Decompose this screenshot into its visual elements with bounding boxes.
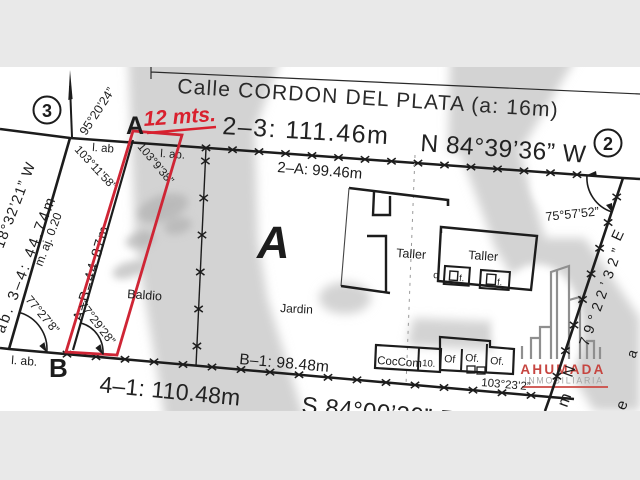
svg-text:Of: Of [444, 353, 456, 366]
svg-text:10.: 10. [422, 358, 436, 370]
svg-text:Taller: Taller [396, 246, 427, 262]
svg-text:B: B [49, 353, 68, 383]
svg-text:Taller: Taller [468, 248, 499, 264]
svg-text:Of.: Of. [490, 355, 505, 368]
svg-text:A: A [126, 112, 144, 140]
svg-text:l. ab: l. ab [92, 142, 115, 155]
svg-text:INMOBILIARIA: INMOBILIARIA [524, 376, 604, 386]
svg-text:f.: f. [459, 273, 465, 283]
svg-text:Jardin: Jardin [280, 301, 313, 317]
svg-text:l. ab.: l. ab. [11, 353, 38, 369]
svg-text:l. ab.: l. ab. [160, 148, 186, 162]
svg-text:3: 3 [42, 101, 52, 121]
svg-text:Of.: Of. [465, 352, 480, 365]
svg-text:A: A [256, 217, 290, 268]
svg-text:2: 2 [603, 134, 613, 154]
svg-text:Baldio: Baldio [127, 287, 163, 303]
svg-text:f.: f. [497, 277, 503, 287]
